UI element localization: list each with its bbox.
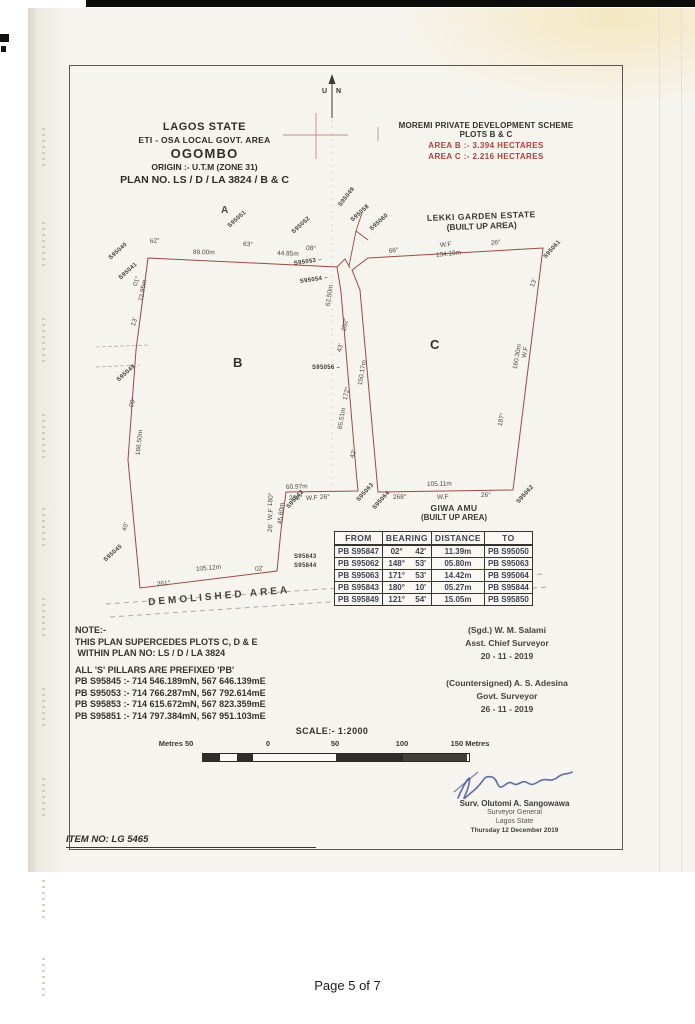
map-label: W.F (306, 496, 318, 503)
title-block-right: MOREMI PRIVATE DEVELOPMENT SCHEME PLOTS … (372, 121, 600, 161)
map-label: S95056 – (312, 365, 340, 371)
title-left-line: ETI - OSA LOCAL GOVT. AREA (92, 135, 317, 145)
table-cell: 10' (410, 582, 431, 594)
item-number: ITEM NO: LG 5465 (66, 834, 316, 848)
map-label: 268° (393, 495, 407, 502)
map-label: 08° (306, 246, 316, 253)
table-cell: 42' (410, 545, 431, 558)
table-cell: PB S95063 (335, 570, 383, 582)
scale-tick-label: Metres 50 (159, 739, 194, 748)
note-line: WITHIN PLAN NO: LS / D / LA 3824 (75, 648, 266, 660)
title-left-line: PLAN NO. LS / D / LA 3824 / B & C (92, 174, 317, 186)
stamp-date: Thursday 12 December 2019 (437, 827, 592, 834)
note-line: THIS PLAN SUPERCEDES PLOTS C, D & E (75, 637, 266, 649)
scheme-plots: PLOTS B & C (372, 130, 600, 139)
north-arrow-icon (329, 74, 336, 118)
table-cell: 15.05m (431, 594, 484, 606)
scheme-title: MOREMI PRIVATE DEVELOPMENT SCHEME (372, 121, 600, 130)
col-to: TO (484, 532, 532, 546)
map-label: A (221, 206, 228, 216)
map-label: S95843 (294, 554, 317, 560)
table-cell: 53' (410, 558, 431, 570)
map-label: 62° (150, 238, 160, 245)
table-row: PB S95843180°10'05.27mPB S95844 (335, 582, 533, 594)
scale-tick-label: 0 (266, 739, 270, 748)
map-label: 89.00m (193, 250, 215, 257)
stamp-title1: Surveyor General (437, 808, 592, 817)
area-b-value: AREA B :- 3.394 HECTARES (372, 141, 600, 150)
map-label: 60.97m (286, 484, 308, 491)
giwa-label-line1: GIWA AMU (404, 503, 504, 513)
north-label-u: U (322, 88, 327, 95)
table-cell: 02° (382, 545, 410, 558)
map-label: 268° (289, 496, 303, 503)
table-cell: 171° (382, 570, 410, 582)
table-row: PB S95062148°53'05.80mPB S95063 (335, 558, 533, 570)
table-cell: PB S95064 (484, 570, 532, 582)
table-cell: 53' (410, 570, 431, 582)
map-label: W.F (440, 242, 452, 250)
table-row: PB S9584702°42'11.39mPB S95050 (335, 545, 533, 558)
map-label: W.F (437, 495, 449, 502)
table-cell: 05.27m (431, 582, 484, 594)
surveyor-general-stamp: Surv. Olutomi A. Sangowawa Surveyor Gene… (437, 799, 592, 834)
title-left-line: OGOMBO (92, 146, 317, 161)
signature-line: 20 - 11 - 2019 (412, 650, 602, 663)
title-left-line: LAGOS STATE (92, 121, 317, 133)
stamp-title2: Lagos State (437, 817, 592, 826)
note-line: ALL 'S' PILLARS ARE PREFIXED 'PB' (75, 665, 266, 677)
giwa-amu-label: GIWA AMU (BUILT UP AREA) (404, 503, 504, 522)
table-cell: 54' (410, 594, 431, 606)
note-block: NOTE:-THIS PLAN SUPERCEDES PLOTS C, D & … (75, 625, 266, 722)
note-line: PB S95853 :- 714 615.672mN, 567 823.359m… (75, 699, 266, 711)
scanned-survey-plan-page: U N LAGOS STATEETI - OSA LOCAL GOVT. ARE… (0, 0, 695, 1024)
note-line: NOTE:- (75, 625, 266, 637)
col-from: FROM (335, 532, 383, 546)
map-label: 66° (389, 248, 400, 256)
note-line: PB S95053 :- 714 766.287mN, 567 792.614m… (75, 688, 266, 700)
table-cell: PB S95062 (335, 558, 383, 570)
table-cell: PB S95847 (335, 545, 383, 558)
signature-block-1: (Sgd.) W. M. SalamiAsst. Chief Surveyor2… (412, 624, 602, 663)
title-block-left: LAGOS STATEETI - OSA LOCAL GOVT. AREAOGO… (92, 121, 317, 186)
scale-title: SCALE:- 1:2000 (232, 726, 432, 736)
table-cell: 14.42m (431, 570, 484, 582)
signature-line: 26 - 11 - 2019 (412, 703, 602, 716)
plot-b-label: B (233, 355, 243, 370)
scale-tick-label: 150 Metres (451, 739, 490, 748)
signature-line: Asst. Chief Surveyor (412, 637, 602, 650)
table-cell: PB S95050 (484, 545, 532, 558)
signature-line: (Countersigned) A. S. Adesina (412, 677, 602, 690)
area-c-value: AREA C :- 2.216 HECTARES (372, 152, 600, 161)
scale-tick-label: 100 (396, 739, 409, 748)
map-label: 105.11m (427, 482, 452, 489)
left-tie-lines (96, 345, 150, 367)
plot-c-boundary (352, 248, 543, 492)
table-cell: PB S95844 (484, 582, 532, 594)
signature-line: (Sgd.) W. M. Salami (412, 624, 602, 637)
scale-tick-label: 50 (331, 739, 339, 748)
col-bearing: BEARING (382, 532, 431, 546)
col-distance: DISTANCE (431, 532, 484, 546)
map-label: 26° (320, 495, 330, 502)
map-label: 26' (268, 523, 275, 532)
table-cell: PB S95849 (335, 594, 383, 606)
note-line: PB S95851 :- 714 797.384mN, 567 951.103m… (75, 711, 266, 723)
table-cell: 148° (382, 558, 410, 570)
plot-b-boundary (128, 258, 358, 588)
stamp-name: Surv. Olutomi A. Sangowawa (437, 799, 592, 808)
map-label: 26° (491, 240, 501, 247)
scale-bar (202, 753, 470, 762)
table-cell: PB S95843 (335, 582, 383, 594)
map-label: 180° (268, 493, 276, 507)
table-cell: PB S95063 (484, 558, 532, 570)
table-cell: PB S95850 (484, 594, 532, 606)
map-label: 44.85m (277, 251, 299, 258)
signature-block-2: (Countersigned) A. S. AdesinaGovt. Surve… (412, 677, 602, 716)
map-label: 02' (255, 566, 264, 573)
signature-line: Govt. Surveyor (412, 690, 602, 703)
title-left-line: ORIGIN :- U.T.M (ZONE 31) (92, 162, 317, 172)
table-cell: 05.80m (431, 558, 484, 570)
bearing-distance-table: FROM BEARING DISTANCE TO PB S9584702°42'… (334, 531, 533, 606)
map-label: S95844 (294, 563, 317, 569)
table-row: PB S95063171°53'14.42mPB S95064 (335, 570, 533, 582)
page-number: Page 5 of 7 (314, 978, 381, 993)
table-cell: 121° (382, 594, 410, 606)
table-row: PB S95849121°54'15.05mPB S95850 (335, 594, 533, 606)
map-label: 26° (481, 493, 491, 500)
table-cell: 11.39m (431, 545, 484, 558)
note-line: PB S95845 :- 714 546.189mN, 567 646.139m… (75, 676, 266, 688)
map-label: W.F (268, 508, 276, 520)
map-label: 261° (157, 581, 171, 589)
giwa-label-line2: (BUILT UP AREA) (404, 513, 504, 522)
plot-c-label: C (430, 337, 440, 352)
table-cell: 180° (382, 582, 410, 594)
north-label-n: N (336, 88, 341, 95)
map-label: 63° (243, 242, 253, 249)
